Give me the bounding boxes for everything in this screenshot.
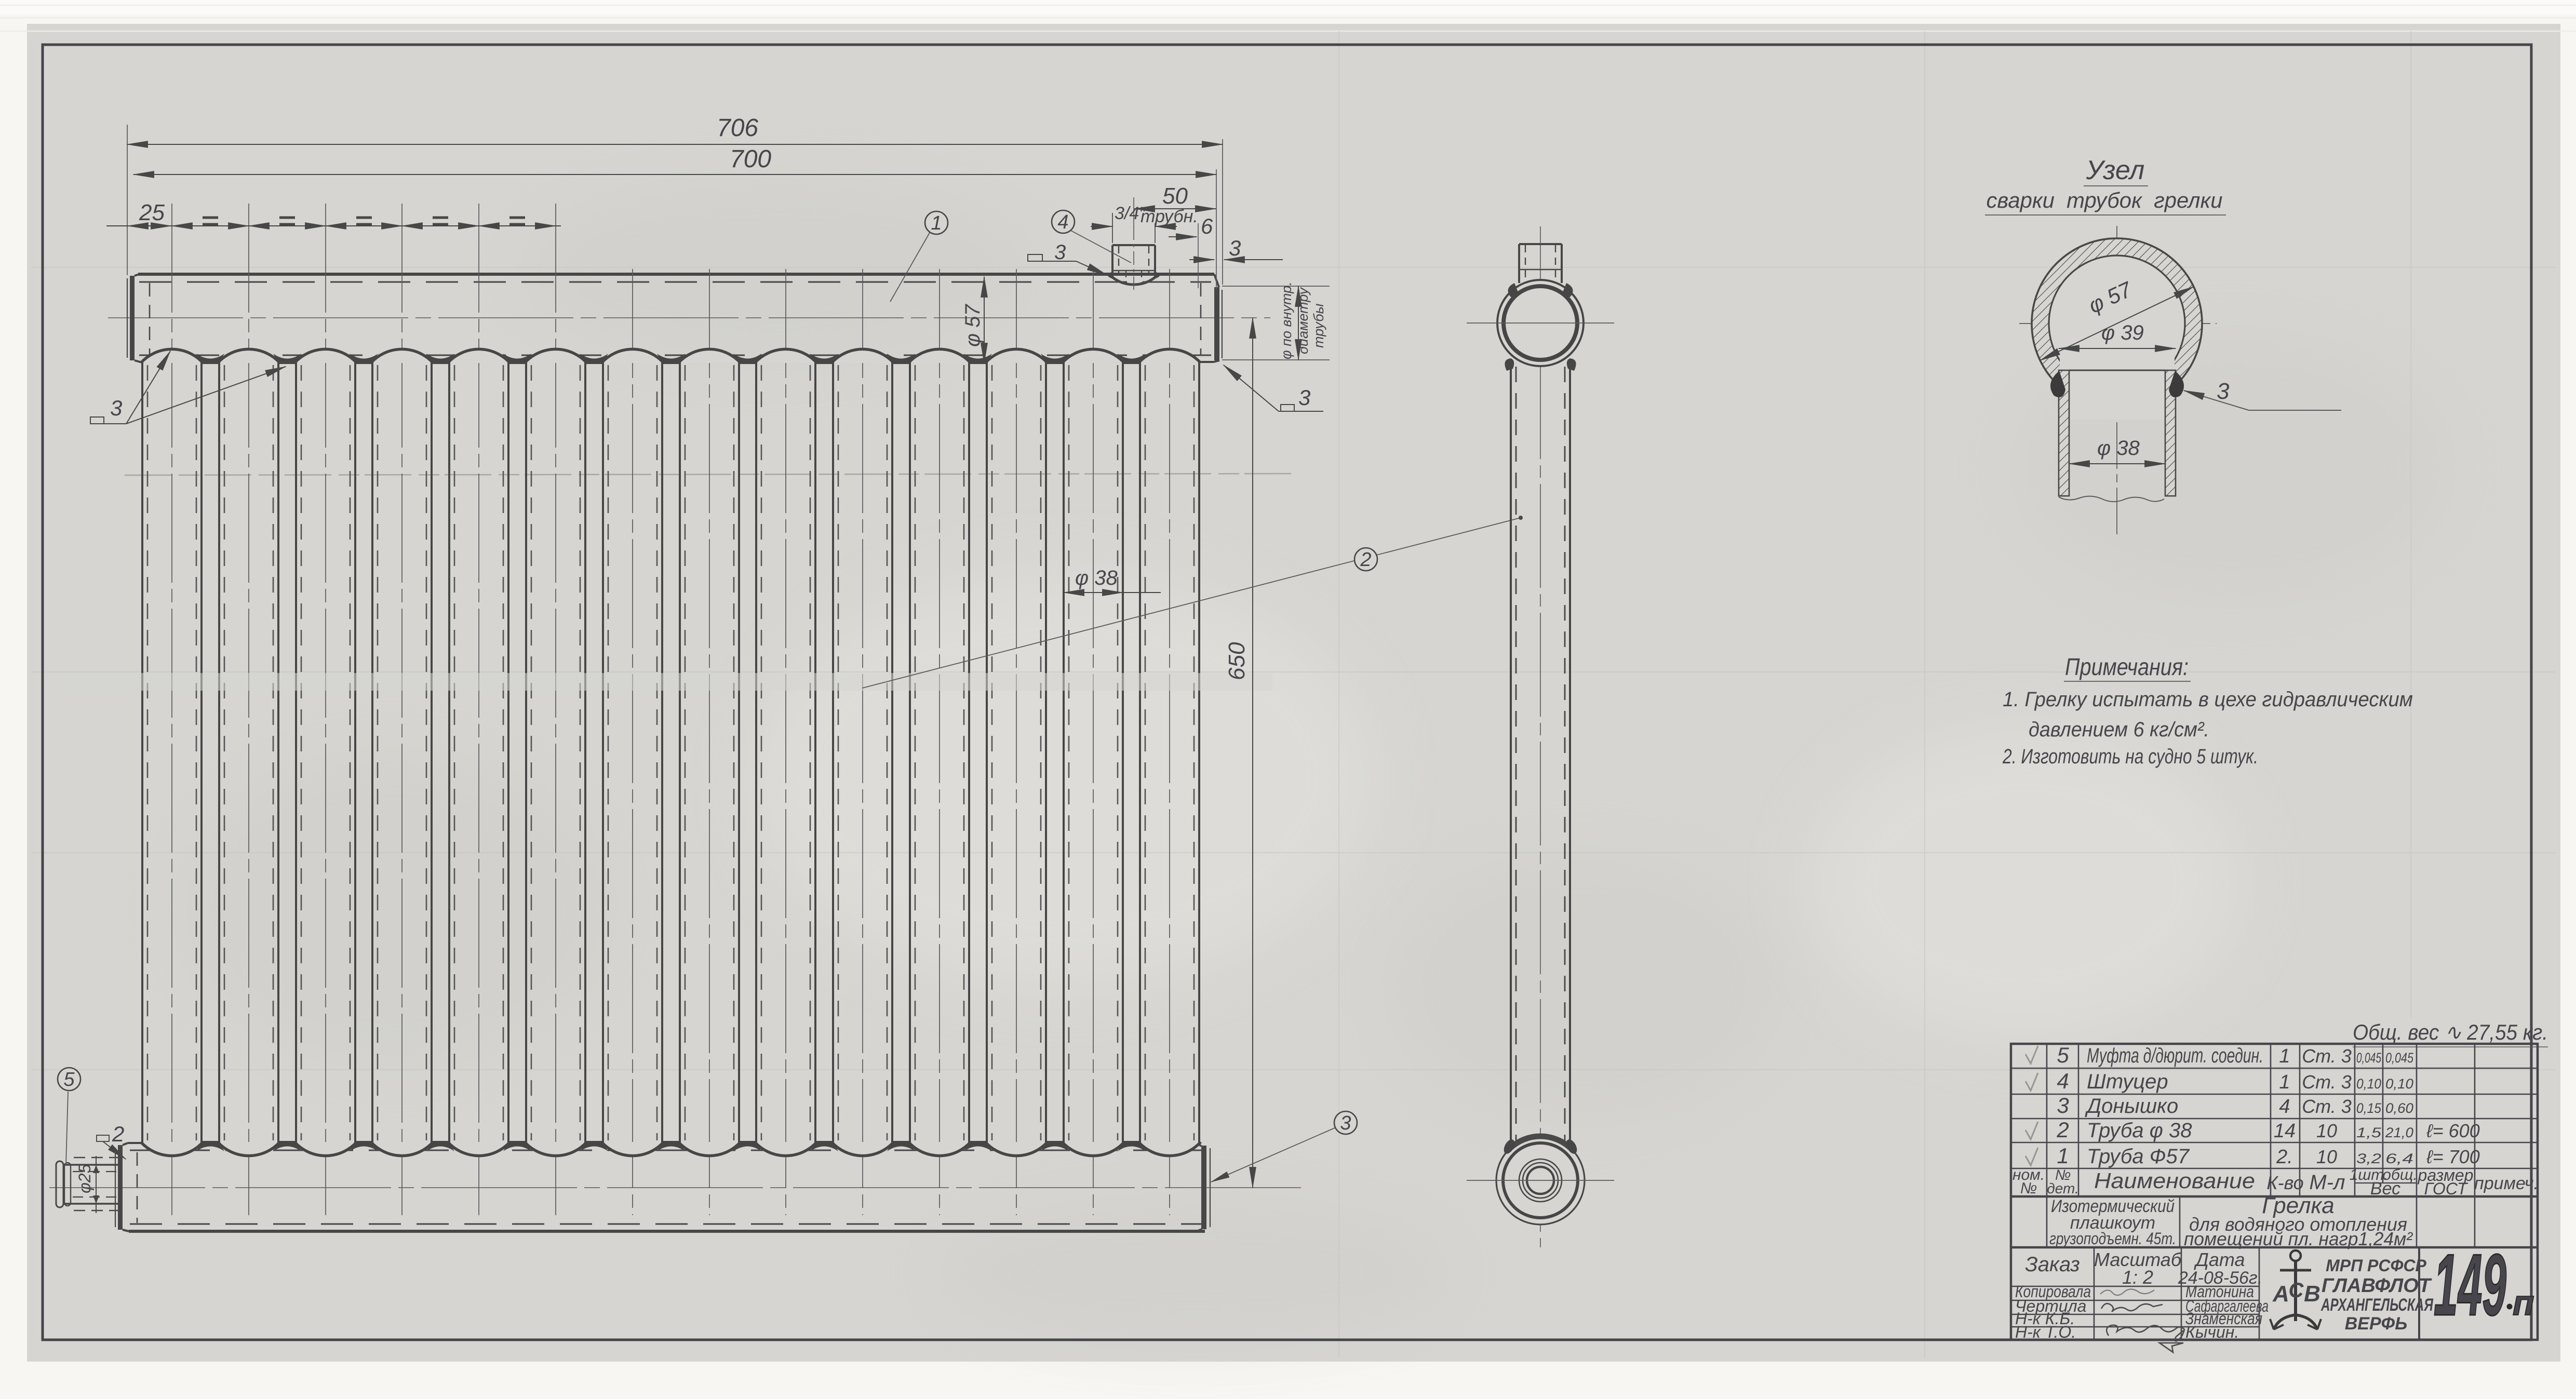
svg-text:грузоподъемн. 45т.: грузоподъемн. 45т. [2049,1229,2176,1248]
svg-text:φ 57: φ 57 [961,304,984,347]
svg-text:Ст. 3: Ст. 3 [2302,1096,2352,1117]
svg-text:2. Изготовить на судно 5 штук: 2. Изготовить на судно 5 штук. [2002,745,2258,768]
svg-text:диаметру: диаметру [1295,287,1311,354]
svg-text:С: С [2289,1279,2304,1302]
svg-text:φ 38: φ 38 [1075,567,1118,589]
svg-text:700: 700 [730,145,771,173]
svg-text:ГЛАВФЛОТ: ГЛАВФЛОТ [2322,1275,2432,1297]
svg-text:0,15: 0,15 [2356,1100,2382,1116]
svg-text:Примечания:: Примечания: [2065,653,2189,680]
svg-text:Штуцер: Штуцер [2087,1070,2168,1093]
svg-text:Наименование: Наименование [2094,1168,2255,1193]
svg-text:4: 4 [1057,211,1068,233]
svg-text:5: 5 [63,1069,75,1091]
svg-text:2.: 2. [2276,1146,2293,1168]
svg-text:Труба Ф57: Труба Ф57 [2087,1145,2190,1168]
svg-text:2: 2 [2056,1118,2069,1142]
svg-text:0,10: 0,10 [2356,1076,2381,1092]
svg-text:1: 1 [2279,1045,2290,1067]
svg-text:0,60: 0,60 [2385,1100,2413,1116]
svg-text:706: 706 [717,114,758,142]
svg-text:№: № [2020,1180,2037,1197]
svg-text:0,10: 0,10 [2385,1076,2413,1092]
svg-text:Донышко: Донышко [2085,1095,2178,1118]
svg-text:25: 25 [139,200,165,225]
svg-text:1: 1 [2279,1071,2290,1093]
svg-text:Узел: Узел [2086,155,2145,185]
svg-text:4: 4 [2057,1069,2069,1093]
svg-text:10: 10 [2316,1146,2337,1167]
svg-text:1,5: 1,5 [2356,1125,2382,1140]
svg-text:Кычин.: Кычин. [2185,1323,2239,1341]
svg-text:φ25: φ25 [75,1164,94,1193]
svg-text:4: 4 [2279,1096,2290,1118]
svg-text:трубы: трубы [1311,303,1326,348]
svg-text:1. Грелку испытать в цехе гидр: 1. Грелку испытать в цехе гидравлическим [2003,688,2413,711]
svg-text:давлением 6 кг/см².: давлением 6 кг/см². [2029,718,2209,741]
svg-text:ℓ= 600: ℓ= 600 [2426,1120,2480,1141]
svg-text:6: 6 [1201,214,1213,238]
svg-text:1: 1 [931,212,942,234]
svg-text:М-л: М-л [2309,1171,2345,1194]
svg-text:3: 3 [1340,1112,1351,1134]
svg-text:50: 50 [1162,183,1188,209]
svg-text:А: А [2272,1281,2289,1307]
svg-text:0,045: 0,045 [2385,1050,2414,1066]
svg-text:3: 3 [110,396,122,420]
svg-text:1: 2: 1: 2 [2122,1267,2153,1288]
svg-text:Заказ: Заказ [2025,1253,2080,1276]
svg-text:3: 3 [2217,379,2230,404]
svg-text:Ст. 3: Ст. 3 [2302,1071,2352,1093]
svg-text:2: 2 [1360,549,1371,571]
svg-text:φ 39: φ 39 [2101,321,2144,344]
svg-text:6,4: 6,4 [2385,1151,2413,1166]
svg-text:Н-к Т.О.: Н-к Т.О. [2015,1323,2076,1341]
svg-text:21,0: 21,0 [2385,1125,2413,1140]
svg-text:Ст. 3: Ст. 3 [2302,1045,2352,1067]
svg-text:3,2: 3,2 [2356,1151,2381,1166]
svg-text:149: 149 [2434,1236,2506,1334]
svg-text:К-во: К-во [2266,1172,2303,1193]
svg-text:дет.: дет. [2047,1180,2079,1196]
svg-text:Муфта д/дюрит. соедин.: Муфта д/дюрит. соедин. [2087,1044,2263,1067]
svg-text:Вес: Вес [2370,1179,2400,1199]
svg-text:650: 650 [1224,642,1250,680]
svg-text:0,045: 0,045 [2356,1050,2382,1066]
svg-text:ВЕРФЬ: ВЕРФЬ [2345,1314,2408,1334]
svg-text:14: 14 [2274,1120,2296,1142]
svg-text:3: 3 [1054,241,1066,264]
svg-text:5: 5 [2057,1043,2069,1067]
svg-text:ℓ= 700: ℓ= 700 [2426,1146,2480,1167]
svg-text:2: 2 [112,1122,124,1146]
svg-text:Дата: Дата [2194,1249,2245,1270]
svg-text:3: 3 [1229,236,1241,260]
svg-text:φ по внутр.: φ по внутр. [1279,281,1294,359]
svg-text:3: 3 [1298,385,1310,410]
svg-text:φ 38: φ 38 [2097,437,2140,460]
svg-text:1: 1 [2057,1144,2069,1168]
svg-text:10: 10 [2316,1120,2337,1141]
svg-text:примеч.: примеч. [2474,1174,2539,1193]
svg-text:ГОСТ: ГОСТ [2424,1179,2468,1198]
svg-text:Общ. вес ∿ 27,55 кг.: Общ. вес ∿ 27,55 кг. [2353,1020,2548,1044]
svg-text:п: п [2513,1283,2534,1323]
svg-text:МРП РСФСР: МРП РСФСР [2326,1256,2426,1275]
svg-text:Труба φ 38: Труба φ 38 [2087,1119,2192,1142]
svg-text:сварки трубок грелки: сварки трубок грелки [1987,188,2223,212]
svg-text:трубн.: трубн. [1141,207,1198,226]
svg-text:В: В [2304,1281,2320,1307]
svg-text:3: 3 [2057,1093,2069,1118]
svg-text:АРХАНГЕЛЬСКАЯ: АРХАНГЕЛЬСКАЯ [2320,1295,2434,1315]
svg-text:помещений пл. нагр1,24м²: помещений пл. нагр1,24м² [2184,1228,2413,1249]
